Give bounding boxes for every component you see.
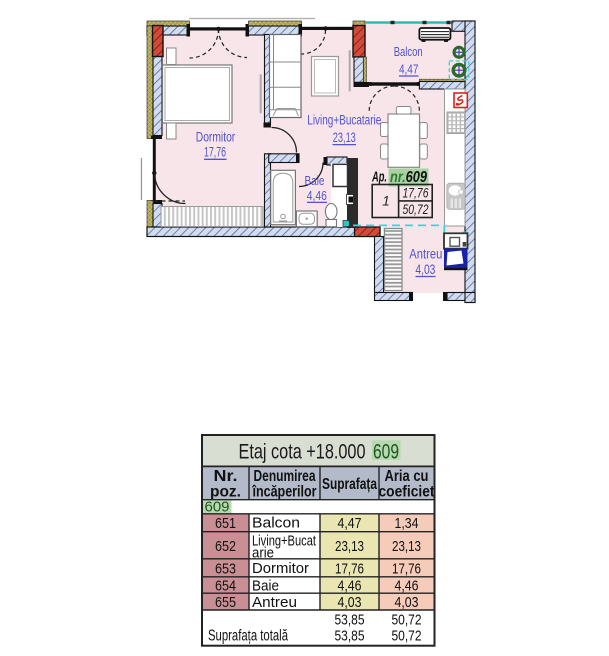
svg-text:Nr.: Nr. xyxy=(214,468,238,485)
svg-text:Ap.: Ap. xyxy=(371,170,387,186)
svg-text:Baie: Baie xyxy=(252,577,279,594)
svg-text:4,03: 4,03 xyxy=(415,262,435,277)
svg-text:609: 609 xyxy=(373,441,399,464)
svg-text:Suprafața totală: Suprafața totală xyxy=(208,628,288,645)
svg-text:23,13: 23,13 xyxy=(335,538,364,555)
svg-text:654: 654 xyxy=(215,578,236,595)
svg-text:Etaj cota +18.000: Etaj cota +18.000 xyxy=(239,441,366,464)
svg-text:Aria cu: Aria cu xyxy=(385,468,429,485)
svg-text:23,13: 23,13 xyxy=(392,538,421,555)
svg-text:609: 609 xyxy=(205,499,230,516)
svg-text:Balcon: Balcon xyxy=(394,44,423,59)
svg-text:23,13: 23,13 xyxy=(333,130,356,145)
svg-text:Antreu: Antreu xyxy=(409,247,442,262)
svg-text:50,72: 50,72 xyxy=(392,611,422,628)
svg-text:53,85: 53,85 xyxy=(335,611,365,628)
svg-text:Antreu: Antreu xyxy=(252,594,297,611)
svg-text:Denumirea: Denumirea xyxy=(254,468,316,485)
svg-text:1: 1 xyxy=(382,194,390,209)
svg-text:coeficiet: coeficiet xyxy=(379,484,435,501)
svg-text:Living+Bucatarie: Living+Bucatarie xyxy=(307,113,381,128)
svg-text:Suprafața: Suprafața xyxy=(322,476,377,493)
svg-text:50,72: 50,72 xyxy=(392,627,422,644)
svg-text:53,85: 53,85 xyxy=(335,627,365,644)
svg-text:Baie: Baie xyxy=(305,173,325,188)
svg-text:17,76: 17,76 xyxy=(335,560,364,577)
svg-text:17,76: 17,76 xyxy=(392,560,421,577)
svg-text:652: 652 xyxy=(215,538,236,555)
svg-text:50,72: 50,72 xyxy=(403,202,429,217)
svg-text:nr.609: nr.609 xyxy=(390,169,427,186)
svg-text:Balcon: Balcon xyxy=(252,515,300,532)
svg-text:1,34: 1,34 xyxy=(395,515,419,532)
svg-text:4,47: 4,47 xyxy=(399,61,419,76)
svg-text:încăperilor: încăperilor xyxy=(252,484,317,501)
svg-text:Dormitor: Dormitor xyxy=(252,560,309,577)
svg-text:653: 653 xyxy=(215,560,236,577)
svg-text:17,76: 17,76 xyxy=(403,186,429,201)
svg-text:4,46: 4,46 xyxy=(307,188,327,203)
svg-text:arie: arie xyxy=(252,545,274,562)
svg-text:Dormitor: Dormitor xyxy=(196,130,236,145)
svg-text:4,46: 4,46 xyxy=(395,578,419,595)
svg-text:4,03: 4,03 xyxy=(338,594,362,611)
svg-text:4,03: 4,03 xyxy=(395,594,419,611)
svg-text:655: 655 xyxy=(215,594,236,611)
svg-text:651: 651 xyxy=(215,515,236,532)
svg-text:4,47: 4,47 xyxy=(338,515,362,532)
svg-text:4,46: 4,46 xyxy=(338,578,362,595)
svg-text:17,76: 17,76 xyxy=(204,145,226,160)
